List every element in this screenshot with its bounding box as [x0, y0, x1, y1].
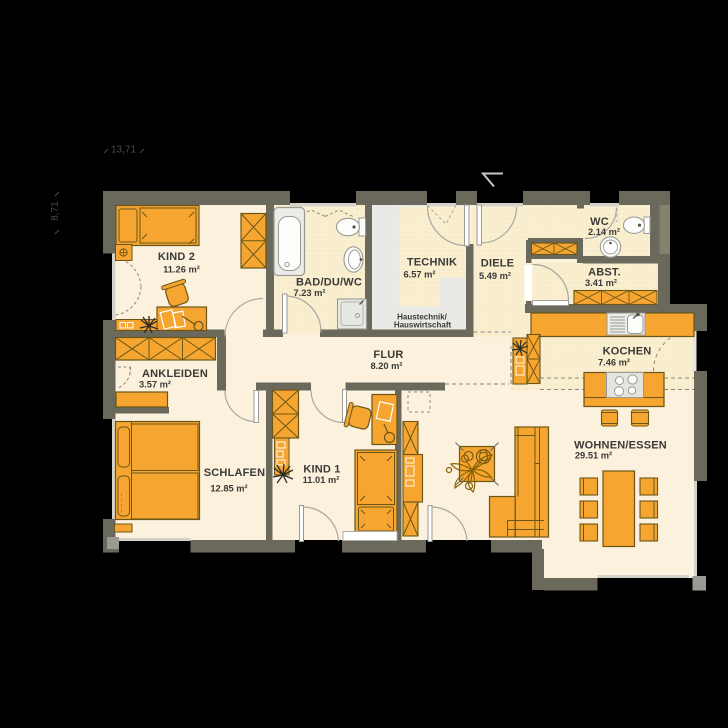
svg-text:BAD/DU/WC: BAD/DU/WC: [296, 277, 362, 289]
svg-text:7.23 m²: 7.23 m²: [293, 288, 325, 298]
svg-text:8,71: 8,71: [50, 201, 61, 221]
svg-text:5.49 m²: 5.49 m²: [479, 271, 511, 281]
svg-text:6.57 m²: 6.57 m²: [403, 270, 435, 280]
svg-text:KOCHEN: KOCHEN: [603, 346, 652, 358]
svg-text:7.46 m²: 7.46 m²: [598, 358, 630, 368]
svg-text:13,71: 13,71: [111, 145, 136, 156]
svg-text:ANKLEIDEN: ANKLEIDEN: [142, 368, 208, 380]
svg-text:ABST.: ABST.: [588, 267, 621, 279]
svg-text:FLUR: FLUR: [373, 349, 403, 361]
svg-text:TECHNIK: TECHNIK: [407, 257, 457, 269]
svg-text:Hauswirtschaft: Hauswirtschaft: [394, 321, 452, 330]
svg-text:DIELE: DIELE: [481, 258, 514, 270]
svg-text:8.20 m²: 8.20 m²: [370, 361, 402, 371]
svg-text:29.51 m²: 29.51 m²: [575, 451, 612, 461]
svg-text:2.14 m²: 2.14 m²: [588, 227, 620, 237]
svg-text:3.41 m²: 3.41 m²: [585, 278, 617, 288]
svg-text:11.01 m²: 11.01 m²: [303, 475, 340, 485]
svg-text:SCHLAFEN: SCHLAFEN: [204, 467, 266, 479]
svg-text:12.85 m²: 12.85 m²: [210, 484, 247, 494]
svg-text:KIND 2: KIND 2: [158, 251, 195, 263]
svg-text:11.26 m²: 11.26 m²: [163, 265, 200, 275]
svg-text:KIND 1: KIND 1: [303, 464, 340, 476]
svg-text:3.57 m²: 3.57 m²: [139, 380, 171, 390]
